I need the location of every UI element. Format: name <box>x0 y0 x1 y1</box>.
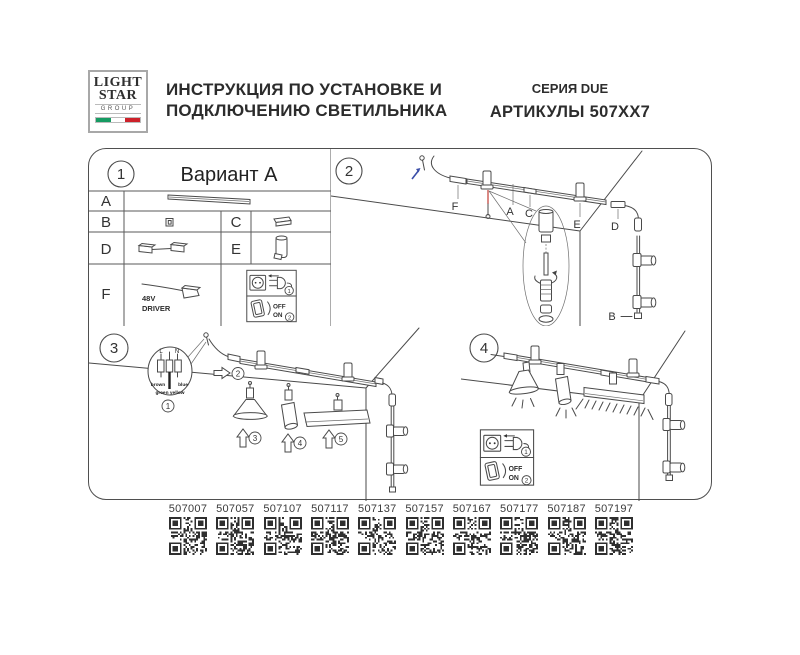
qr-item: 507107 <box>262 503 304 560</box>
part-e-cylinder-icon <box>274 236 287 260</box>
supply-cable <box>209 339 228 357</box>
italy-flag-icon <box>95 117 141 123</box>
light-rays <box>556 408 576 418</box>
qr-code <box>311 517 349 555</box>
label-b: B <box>608 311 615 323</box>
series-info: СЕРИЯ DUE АРТИКУЛЫ 507XX7 <box>470 81 670 122</box>
spot-lamp <box>387 425 408 437</box>
power-step-2: 2 <box>288 315 291 321</box>
driver-label: DRIVER <box>142 304 171 313</box>
title-line-2: ПОДКЛЮЧЕНИЮ СВЕТИЛЬНИКА <box>166 100 447 121</box>
part-c-connector-icon <box>274 217 291 226</box>
step-4: 4 <box>298 439 303 448</box>
label-f: F <box>452 201 459 213</box>
screw-icon <box>486 204 490 219</box>
qr-article-number: 507117 <box>309 503 351 515</box>
socket-icon <box>484 435 501 451</box>
row-label-e: E <box>231 241 241 258</box>
qr-article-number: 507197 <box>593 503 635 515</box>
part-a-rail-icon <box>168 195 250 204</box>
document-title: ИНСТРУКЦИЯ ПО УСТАНОВКЕ И ПОДКЛЮЧЕНИЮ СВ… <box>166 79 447 121</box>
logo-star: STAR <box>90 89 146 102</box>
qr-code <box>264 517 302 555</box>
qr-item: 507117 <box>309 503 351 560</box>
qr-item: 507167 <box>451 503 493 560</box>
qr-article-number: 507107 <box>262 503 304 515</box>
insert-arrow-icon <box>282 434 294 452</box>
ceiling-mount <box>529 346 541 364</box>
ceiling-mount <box>342 363 354 381</box>
panel1-number: 1 <box>117 166 125 183</box>
qr-article-number: 507157 <box>404 503 446 515</box>
row-label-a: A <box>101 193 111 210</box>
driver-voltage: 48V <box>142 294 155 303</box>
spot-lamp <box>387 463 408 475</box>
spot-lamp <box>663 461 685 473</box>
qr-code <box>406 517 444 555</box>
qr-code <box>548 517 586 555</box>
qr-item: 507137 <box>356 503 398 560</box>
label-d: D <box>611 221 619 233</box>
qr-article-number: 507167 <box>451 503 493 515</box>
qr-code <box>500 517 538 555</box>
switch-on-label: ON <box>509 475 519 482</box>
spot-lamp <box>633 296 656 309</box>
connector <box>504 353 517 361</box>
power-step-2: 2 <box>525 478 529 485</box>
wire-brown-label: brown <box>151 382 165 388</box>
qr-code <box>216 517 254 555</box>
light-rays <box>512 398 534 408</box>
connector <box>646 377 659 385</box>
part-d-connector-pair-icon <box>139 243 187 254</box>
qr-article-number: 507057 <box>214 503 256 515</box>
supply-cable <box>431 156 450 178</box>
label-a: A <box>506 206 514 218</box>
title-line-1: ИНСТРУКЦИЯ ПО УСТАНОВКЕ И <box>166 79 447 100</box>
cone-spot-lamp <box>509 362 539 408</box>
qr-item: 507007 <box>167 503 209 560</box>
switch-on-label: ON <box>273 312 283 319</box>
row-label-d: D <box>101 241 112 258</box>
connector <box>375 378 383 385</box>
label-e: E <box>573 219 580 231</box>
cylinder-spot-lamp <box>282 384 298 431</box>
power-step-1: 1 <box>288 289 291 295</box>
qr-item: 507177 <box>498 503 540 560</box>
wire-blue-label: blue <box>178 382 188 388</box>
row-label-b: B <box>101 214 111 231</box>
suspension-exploded-view <box>535 210 557 323</box>
ceiling-mount <box>574 183 586 201</box>
panel2-mounting-diagram: 2 F A C <box>331 149 713 326</box>
cone-spot-lamp <box>234 382 268 420</box>
qr-code <box>453 517 491 555</box>
connector <box>228 354 240 362</box>
insert-arrow-icon <box>323 430 335 448</box>
connector-f <box>450 176 466 199</box>
power-steps-box: 1 OFF ON 2 <box>478 429 536 486</box>
spot-lamp <box>633 254 656 267</box>
screw-icon <box>420 156 425 170</box>
end-cap <box>666 475 673 481</box>
row-label-c: C <box>231 214 242 231</box>
step-3: 3 <box>253 434 258 443</box>
wire-green-label: green yellow <box>155 390 184 396</box>
spot-lamp <box>663 419 685 431</box>
qr-row: 507007 507057 507107 507117 507137 50715… <box>167 503 635 560</box>
variant-title: Вариант А <box>181 164 279 186</box>
power-step-1: 1 <box>524 449 528 456</box>
switch-off-label: OFF <box>509 466 523 473</box>
screw-icon <box>204 333 209 345</box>
wire-connection-detail: L N brown blue green yellow <box>148 347 192 396</box>
qr-code <box>595 517 633 555</box>
part-b-clip-icon <box>166 219 173 227</box>
ceiling-mount <box>627 359 639 377</box>
articles-code: АРТИКУЛЫ 507XX7 <box>470 103 670 122</box>
cylinder-spot-lamp <box>556 364 577 419</box>
qr-article-number: 507187 <box>546 503 588 515</box>
qr-code <box>169 517 207 555</box>
qr-article-number: 507137 <box>356 503 398 515</box>
qr-code <box>358 517 396 555</box>
instruction-frame: 1 Вариант А A B C D E F <box>88 148 712 500</box>
step-2: 2 <box>236 369 241 378</box>
step-5: 5 <box>339 435 344 444</box>
end-cap-b <box>635 313 642 319</box>
qr-item: 507197 <box>593 503 635 560</box>
switch-off-label: OFF <box>273 304 286 311</box>
step-1: 1 <box>166 402 171 411</box>
connector-d <box>611 202 625 208</box>
panel3-number: 3 <box>110 340 118 357</box>
series-name: СЕРИЯ DUE <box>470 81 670 96</box>
panel2-number: 2 <box>345 163 353 180</box>
qr-article-number: 507007 <box>167 503 209 515</box>
slide-arrow-icon <box>214 368 230 379</box>
row-label-f: F <box>101 286 110 303</box>
ceiling-mount <box>255 351 267 369</box>
insert-arrow-icon <box>237 429 249 447</box>
power-steps-box: 1 OFF ON 2 <box>246 269 297 323</box>
panel3-installation-diagram: 3 L N brown blue green yellow 1 2 <box>89 326 461 501</box>
lightstar-logo: LIGHT STAR GROUP <box>88 70 148 133</box>
drill-arrow-icon <box>412 168 421 179</box>
logo-group: GROUP <box>95 104 141 114</box>
socket-icon <box>250 275 266 290</box>
wire-detail-leaders <box>188 339 206 364</box>
end-cap <box>390 487 396 492</box>
panel4-number: 4 <box>480 340 488 357</box>
qr-item: 507057 <box>214 503 256 560</box>
qr-article-number: 507177 <box>498 503 540 515</box>
qr-item: 507157 <box>404 503 446 560</box>
qr-item: 507187 <box>546 503 588 560</box>
ceiling-mount <box>481 171 493 189</box>
connector-c <box>524 188 536 195</box>
linear-lamp <box>304 394 370 427</box>
